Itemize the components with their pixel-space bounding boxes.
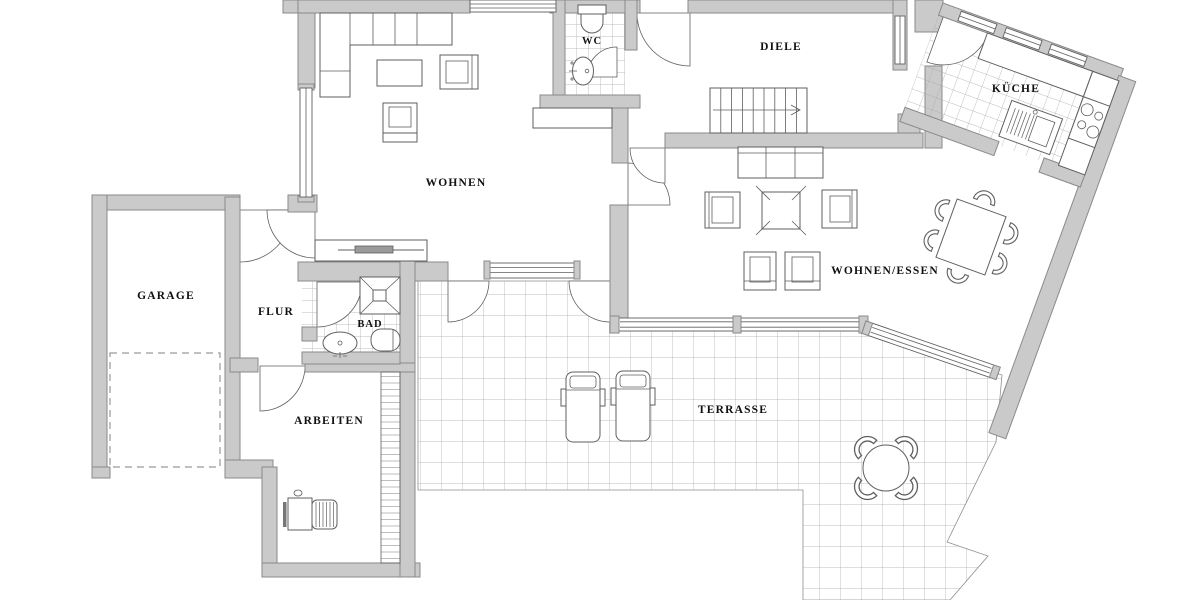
label-kueche: KÜCHE <box>992 81 1040 95</box>
sideboard <box>315 240 427 261</box>
dining-set <box>914 177 1029 298</box>
sun-lounger <box>611 371 655 441</box>
sun-lounger <box>561 372 605 442</box>
side-table <box>756 186 806 235</box>
dining-chair <box>944 268 968 286</box>
label-wohnen-essen: WOHNEN/ESSEN <box>831 265 939 277</box>
hall-entry-door-arc <box>637 13 690 66</box>
desk <box>283 490 312 530</box>
bath-toilet <box>371 329 400 351</box>
coffee-table <box>377 60 422 86</box>
label-flur: FLUR <box>258 306 294 318</box>
label-wc: WC <box>582 36 602 47</box>
dining-chair <box>992 253 1010 277</box>
label-diele: DIELE <box>760 41 802 53</box>
wc-sideboard <box>533 108 612 128</box>
staircase <box>710 88 807 133</box>
entry-door-arc-2 <box>267 210 315 258</box>
label-wohnen: WOHNEN <box>426 177 487 189</box>
round-table <box>863 445 909 491</box>
dining-table <box>936 199 1006 275</box>
chair <box>744 252 776 290</box>
armchair <box>440 55 478 89</box>
office-door-arc <box>260 366 305 411</box>
label-arbeiten: ARBEITEN <box>294 415 364 427</box>
dining-chair <box>921 227 939 251</box>
dining-glass-front <box>610 316 868 333</box>
shelf <box>381 372 400 563</box>
label-garage: GARAGE <box>137 290 195 302</box>
armchair <box>383 103 417 142</box>
sofa <box>738 147 823 178</box>
dining-chair <box>973 188 997 206</box>
office-furniture <box>283 372 400 563</box>
garage-parking-spot <box>110 353 220 467</box>
office-chair <box>312 500 337 529</box>
label-terrasse: TERRASSE <box>698 404 768 416</box>
floor-plan-drawing: GARAGE FLUR BAD ARBEITEN WOHNEN WC DIELE… <box>0 0 1200 600</box>
living-room-furniture <box>315 13 478 261</box>
living-room-window-west <box>300 88 312 197</box>
chair <box>785 252 820 290</box>
label-bad: BAD <box>357 319 382 330</box>
dining-chair <box>1003 223 1021 247</box>
living-room-window-north <box>470 0 556 12</box>
hall-window-east <box>895 16 905 64</box>
shower <box>360 277 400 314</box>
living-room-window-south <box>484 261 580 279</box>
armchair <box>705 192 740 228</box>
armchair <box>822 190 857 228</box>
floor-plan: GARAGE FLUR BAD ARBEITEN WOHNEN WC DIELE… <box>0 0 1200 600</box>
dining-chair <box>932 197 950 221</box>
